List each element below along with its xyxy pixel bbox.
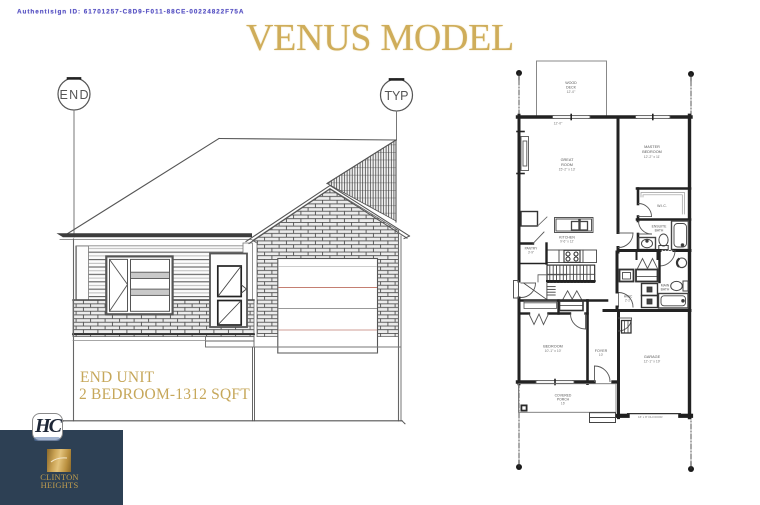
svg-text:W.I.C.: W.I.C.	[657, 204, 667, 208]
svg-text:DECK: DECK	[566, 86, 577, 90]
svg-text:16' x 8' OH DOOR: 16' x 8' OH DOOR	[638, 415, 663, 419]
svg-text:10'-1" x 10': 10'-1" x 10'	[545, 349, 562, 353]
svg-text:16': 16'	[561, 402, 566, 406]
svg-text:9'-6" x 12': 9'-6" x 12'	[560, 240, 574, 244]
svg-text:2'-2": 2'-2"	[625, 299, 631, 303]
svg-text:3'-9": 3'-9"	[528, 251, 534, 255]
svg-text:10': 10'	[599, 353, 604, 357]
svg-text:MASTER: MASTER	[644, 145, 660, 149]
svg-text:BATH: BATH	[655, 229, 664, 233]
svg-text:BEDROOM: BEDROOM	[543, 345, 563, 349]
svg-text:BEDROOM: BEDROOM	[642, 150, 662, 154]
svg-text:BATH: BATH	[661, 288, 670, 292]
svg-text:12'-1" x 19': 12'-1" x 19'	[644, 360, 661, 364]
svg-text:END: END	[60, 88, 89, 102]
svg-text:15'-2" x 13': 15'-2" x 13'	[559, 168, 576, 172]
svg-text:12'-2" x 11': 12'-2" x 11'	[644, 155, 661, 159]
svg-text:GREAT: GREAT	[561, 158, 574, 162]
svg-text:GARAGE: GARAGE	[644, 355, 661, 359]
svg-text:WOOD: WOOD	[565, 81, 577, 85]
svg-text:TYP: TYP	[385, 89, 409, 103]
svg-text:ROOM: ROOM	[561, 163, 573, 167]
svg-text:12'-0": 12'-0"	[554, 122, 563, 126]
svg-text:12'-0": 12'-0"	[567, 90, 576, 94]
